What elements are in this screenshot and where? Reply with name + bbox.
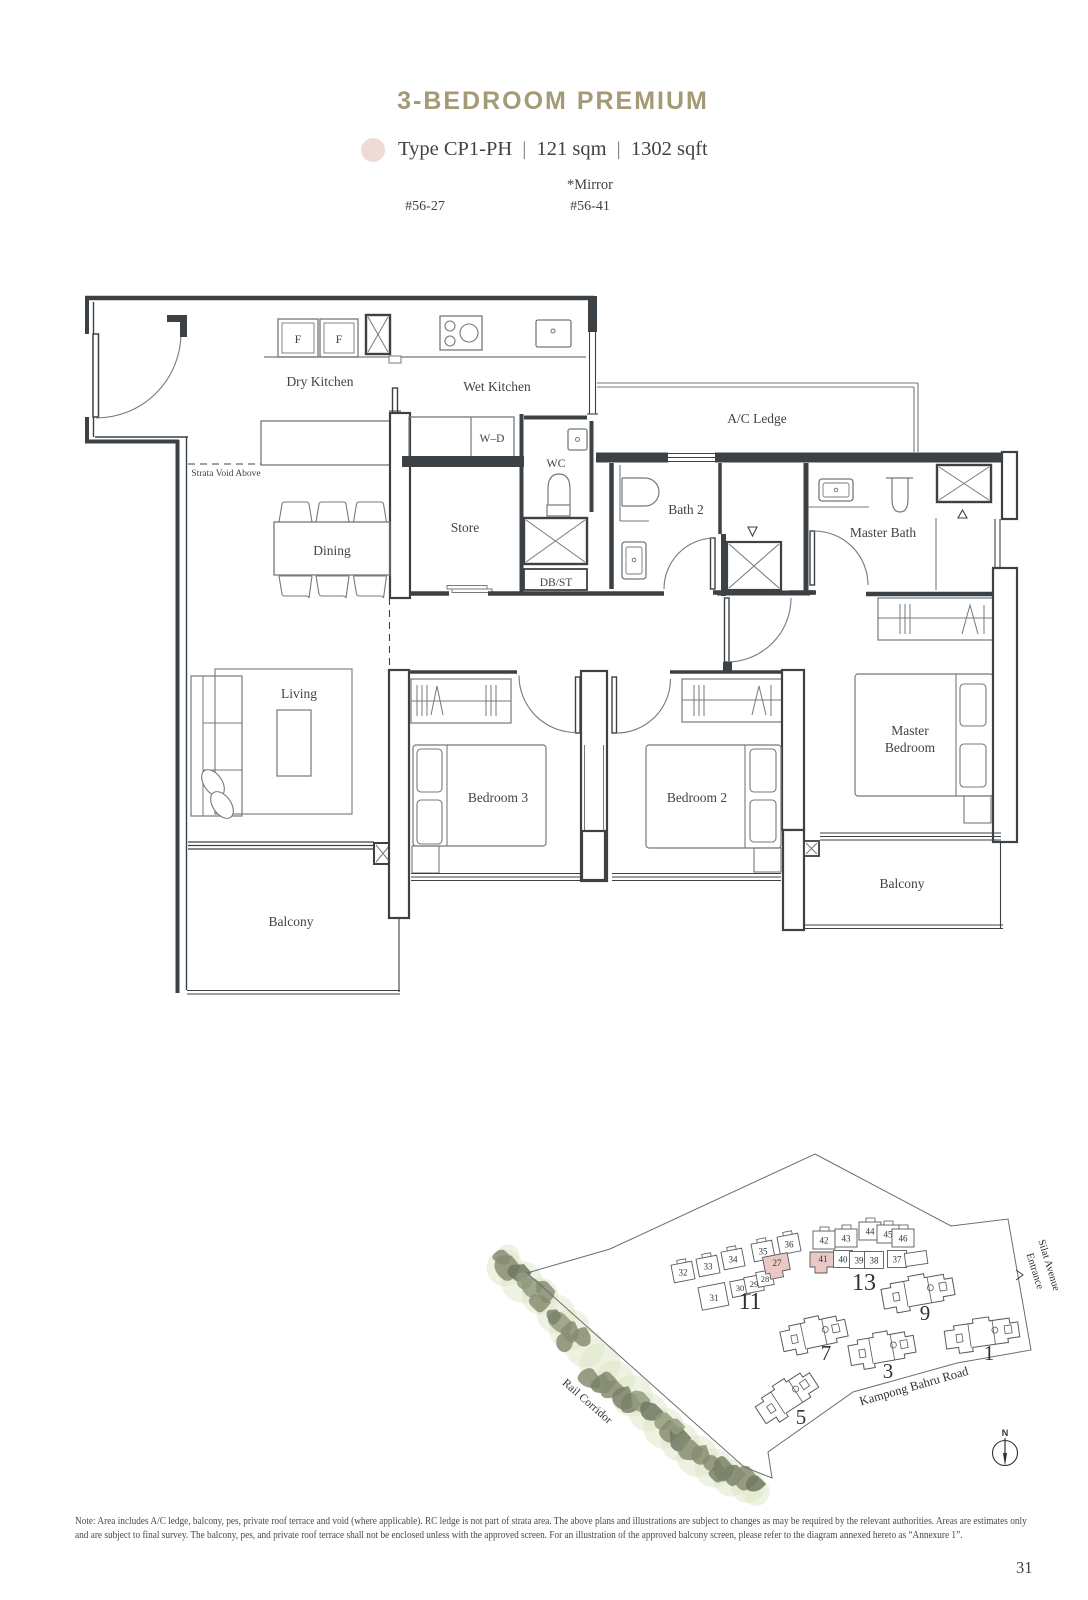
svg-text:1: 1 xyxy=(984,1341,995,1365)
svg-text:Balcony: Balcony xyxy=(880,876,925,891)
svg-text:28: 28 xyxy=(761,1274,770,1284)
svg-text:Bedroom 3: Bedroom 3 xyxy=(468,790,529,805)
svg-text:13: 13 xyxy=(852,1270,876,1296)
svg-text:36: 36 xyxy=(785,1240,795,1250)
svg-text:37: 37 xyxy=(893,1255,903,1265)
svg-text:39: 39 xyxy=(855,1256,865,1266)
svg-text:32: 32 xyxy=(679,1268,688,1278)
svg-text:33: 33 xyxy=(704,1262,714,1272)
svg-text:35: 35 xyxy=(759,1247,769,1257)
svg-text:N: N xyxy=(1002,1428,1009,1438)
svg-text:Master Bath: Master Bath xyxy=(850,525,917,540)
svg-text:11: 11 xyxy=(738,1289,761,1315)
svg-text:Store: Store xyxy=(451,520,480,535)
svg-text:3: 3 xyxy=(883,1359,894,1383)
svg-text:DB/ST: DB/ST xyxy=(540,577,573,589)
svg-text:34: 34 xyxy=(729,1255,739,1265)
svg-text:40: 40 xyxy=(839,1255,849,1265)
svg-text:Bedroom 2: Bedroom 2 xyxy=(667,790,727,805)
svg-text:43: 43 xyxy=(842,1234,852,1244)
svg-text:41: 41 xyxy=(819,1254,828,1264)
svg-text:46: 46 xyxy=(899,1234,909,1244)
svg-text:Strata Void Above: Strata Void Above xyxy=(191,469,260,479)
svg-text:9: 9 xyxy=(920,1301,931,1325)
svg-text:27: 27 xyxy=(773,1258,783,1268)
svg-text:Bath 2: Bath 2 xyxy=(668,502,704,517)
svg-text:44: 44 xyxy=(866,1227,876,1237)
svg-text:31: 31 xyxy=(710,1293,719,1303)
svg-text:Master: Master xyxy=(891,723,929,738)
svg-text:38: 38 xyxy=(870,1256,880,1266)
svg-text:42: 42 xyxy=(820,1236,829,1246)
svg-text:W–D: W–D xyxy=(480,433,505,445)
svg-text:Living: Living xyxy=(281,686,317,701)
svg-text:F: F xyxy=(336,332,343,346)
svg-text:Balcony: Balcony xyxy=(269,914,314,929)
svg-text:Wet Kitchen: Wet Kitchen xyxy=(463,379,531,394)
svg-text:Dining: Dining xyxy=(313,543,351,558)
svg-text:Bedroom: Bedroom xyxy=(885,740,936,755)
svg-text:WC: WC xyxy=(546,456,565,470)
svg-text:A/C Ledge: A/C Ledge xyxy=(727,411,787,426)
svg-text:Dry Kitchen: Dry Kitchen xyxy=(286,374,353,389)
svg-text:F: F xyxy=(295,332,302,346)
svg-text:5: 5 xyxy=(796,1405,807,1429)
svg-text:7: 7 xyxy=(821,1341,832,1365)
